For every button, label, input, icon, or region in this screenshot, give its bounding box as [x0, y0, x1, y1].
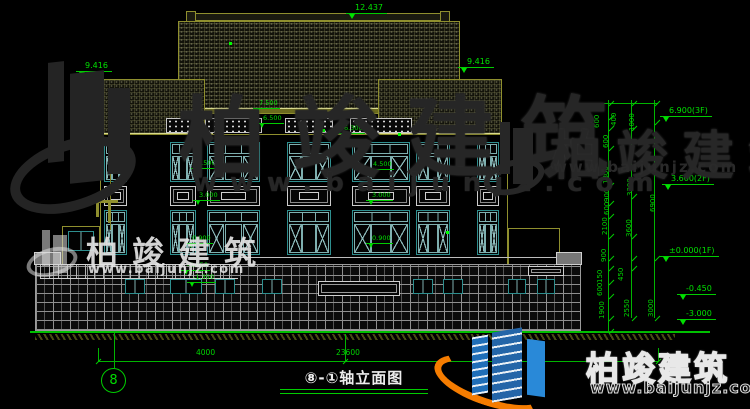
- axis-bubble-8: 8: [101, 368, 126, 393]
- dim-tick: [609, 316, 615, 322]
- dim-text: 3600: [626, 219, 633, 237]
- bracket-detail: [108, 203, 111, 223]
- window-brace: [391, 224, 408, 253]
- elevation-triangle-icon: [349, 14, 355, 19]
- title-underline: [280, 389, 428, 390]
- elevation-value: -0.450: [677, 284, 716, 295]
- wall-panel: [318, 281, 400, 296]
- window-transom: [354, 212, 408, 222]
- elevation-triangle-icon: [196, 201, 200, 205]
- window: [352, 210, 410, 255]
- right-wing-wall: [508, 228, 560, 265]
- basement-window: [508, 279, 526, 294]
- basement-window: [215, 279, 235, 294]
- window-brace: [491, 224, 497, 253]
- elevation-marker: -3.000: [677, 309, 716, 325]
- elevation-triangle-icon: [369, 201, 373, 205]
- elevation-triangle-icon: [369, 244, 373, 248]
- bracket-detail: [96, 203, 99, 217]
- elevation-value: 9.416: [458, 57, 494, 68]
- drawing-title: ⑧-①轴立面图: [278, 367, 430, 388]
- watermark-logo-building: [53, 235, 67, 273]
- dim-text: 3000: [648, 299, 655, 317]
- basement-window: [537, 279, 555, 294]
- cursor-dot: [229, 42, 232, 45]
- dim-text: 450: [618, 268, 625, 281]
- basement-window: [413, 279, 433, 294]
- basement-window: [443, 279, 463, 294]
- window-brace: [418, 224, 428, 253]
- dim-tick: [655, 316, 661, 322]
- window-pane: [485, 224, 492, 253]
- watermark-logo-building-blue: [472, 335, 488, 396]
- elevation-triangle-icon: [190, 283, 194, 287]
- window: [416, 210, 450, 255]
- window: [477, 210, 499, 255]
- dim-text: 2550: [624, 299, 631, 317]
- basement-window: [262, 279, 282, 294]
- dim-tick: [609, 234, 615, 240]
- watermark-logo-building-blue: [527, 339, 545, 398]
- elevation-drawing-canvas: 8 1 ⑧-①轴立面图 6004001000600180033009006002…: [0, 0, 750, 409]
- window-transom: [418, 212, 448, 222]
- watermark-logo-building: [108, 88, 130, 174]
- window-brace: [316, 224, 329, 253]
- elevation-triangle-icon: [663, 257, 669, 262]
- window-transom: [209, 212, 258, 222]
- window-transom: [172, 212, 194, 222]
- dim-chain-line: [596, 331, 658, 332]
- dim-tick: [609, 280, 615, 286]
- window-transom: [289, 212, 329, 222]
- dim-text: 2100: [602, 217, 609, 235]
- window-pane: [302, 224, 316, 253]
- ground-hatch: [35, 334, 675, 340]
- watermark-url-text: www.baijunjz.com: [590, 378, 750, 397]
- elevation-value: -3.000: [677, 309, 716, 320]
- watermark-logo-building: [513, 128, 533, 184]
- pillar-cap-right: [556, 252, 582, 265]
- elevation-marker: 0.900: [366, 235, 393, 248]
- elevation-triangle-icon: [680, 320, 686, 325]
- window: [287, 210, 331, 255]
- dim-tick: [609, 294, 615, 300]
- window-transom: [479, 212, 497, 222]
- watermark-logo-building: [70, 70, 104, 184]
- elevation-value: 12.437: [346, 3, 387, 14]
- title-underline: [280, 393, 428, 394]
- dim-tick: [632, 266, 638, 272]
- window-brace: [438, 224, 448, 253]
- watermark-brand-text: 柏竣建筑: [550, 114, 750, 189]
- elevation-marker: 12.437: [346, 3, 387, 19]
- dim-text: 1900: [599, 301, 606, 319]
- window-brace: [289, 224, 302, 253]
- watermark-url-text: www.baijunjz.com: [553, 158, 738, 176]
- dim-text: 900: [601, 249, 608, 262]
- bottom-dim-line: [98, 361, 658, 362]
- wall-panel: [528, 266, 564, 276]
- basement-window: [125, 279, 145, 294]
- dim-text: 23600: [336, 349, 360, 357]
- elevation-marker: -0.450: [677, 284, 716, 300]
- cursor-dot: [446, 231, 449, 234]
- elevation-triangle-icon: [680, 295, 686, 300]
- dim-text: 600: [604, 202, 611, 215]
- dim-tick: [609, 256, 615, 262]
- watermark-logo-building: [500, 122, 510, 174]
- axis-leader: [114, 333, 115, 368]
- roof-ridge: [192, 13, 444, 21]
- dim-tick: [632, 256, 638, 262]
- terrace-edge: [240, 257, 581, 258]
- window-pane: [428, 224, 439, 253]
- dim-tick: [609, 266, 615, 272]
- watermark-url-text: www.baijunjz.com: [88, 262, 245, 277]
- elevation-value: ±0.000(1F): [660, 246, 719, 257]
- watermark-logo-building: [48, 61, 64, 163]
- elevation-marker: ±0.000(1F): [660, 246, 719, 262]
- watermark-logo-building: [42, 230, 50, 266]
- dim-text: 4000: [196, 349, 215, 357]
- elevation-value: 0.900: [366, 235, 393, 244]
- watermark-logo-building-blue: [492, 327, 522, 402]
- dim-text: 150: [597, 270, 604, 283]
- dim-tick: [632, 316, 638, 322]
- dim-text: 600: [597, 283, 604, 296]
